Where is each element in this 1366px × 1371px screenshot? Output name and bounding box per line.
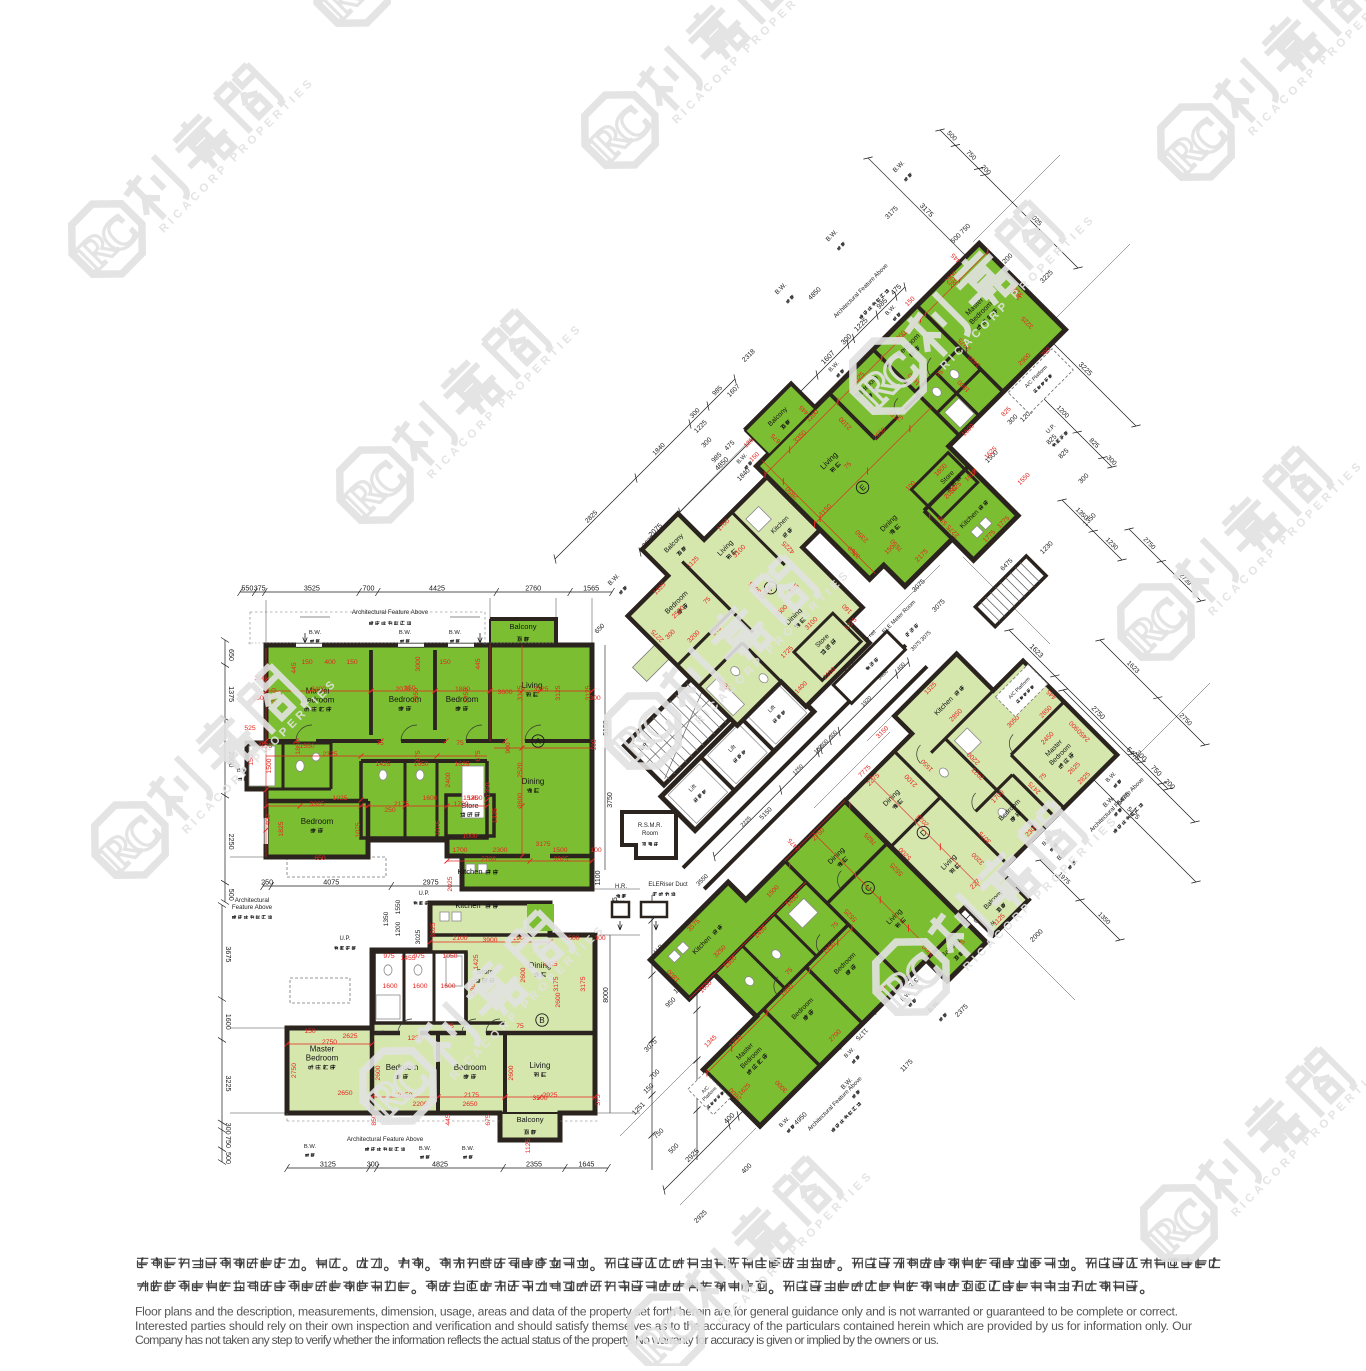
svg-text:1600: 1600 <box>422 795 437 802</box>
svg-text:3000: 3000 <box>415 656 422 671</box>
svg-text:3025: 3025 <box>430 922 437 937</box>
svg-text:2600: 2600 <box>520 967 527 982</box>
svg-text:4425: 4425 <box>429 583 445 592</box>
svg-text:3225: 3225 <box>224 1076 233 1092</box>
svg-text:1700: 1700 <box>453 801 468 808</box>
svg-text:700: 700 <box>363 583 375 592</box>
svg-text:1600: 1600 <box>224 1014 233 1030</box>
svg-text:1700: 1700 <box>452 847 467 854</box>
svg-text:1075: 1075 <box>355 822 362 837</box>
svg-text:B.W.: B.W. <box>304 1144 317 1150</box>
svg-text:1455: 1455 <box>400 955 415 962</box>
svg-text:1550: 1550 <box>395 899 402 914</box>
svg-text:3675: 3675 <box>224 946 233 962</box>
svg-text:1100: 1100 <box>595 870 602 885</box>
svg-text:B.W.: B.W. <box>309 630 322 636</box>
svg-text:1400: 1400 <box>467 795 482 802</box>
svg-text:2250: 2250 <box>227 834 236 850</box>
svg-text:Living: Living <box>530 1061 551 1070</box>
svg-text:Company has not taken any step: Company has not taken any step to verify… <box>135 1333 939 1347</box>
svg-text:2650: 2650 <box>337 1090 352 1097</box>
svg-text:2750: 2750 <box>322 1039 337 1046</box>
svg-text:675: 675 <box>485 1114 492 1126</box>
svg-text:3600: 3600 <box>517 793 524 808</box>
svg-text:1600: 1600 <box>440 983 455 990</box>
svg-text:150: 150 <box>301 659 313 666</box>
svg-text:ELERiser Duct: ELERiser Duct <box>648 882 688 888</box>
svg-text:1425: 1425 <box>375 761 390 768</box>
svg-text:1075: 1075 <box>435 820 442 835</box>
svg-text:Kitchen: Kitchen <box>455 901 480 910</box>
svg-text:445: 445 <box>291 662 298 674</box>
svg-text:445: 445 <box>475 658 482 670</box>
svg-text:75: 75 <box>516 1023 524 1030</box>
svg-text:2025: 2025 <box>447 876 454 891</box>
svg-text:Balcony: Balcony <box>509 622 536 631</box>
svg-text:2700: 2700 <box>481 856 496 863</box>
svg-text:375: 375 <box>254 583 266 592</box>
svg-text:B.W.: B.W. <box>449 630 462 636</box>
svg-text:1375: 1375 <box>227 686 236 702</box>
svg-text:2300: 2300 <box>492 847 507 854</box>
svg-text:150: 150 <box>439 659 451 666</box>
svg-text:2025: 2025 <box>553 856 568 863</box>
svg-text:1200: 1200 <box>395 921 402 936</box>
svg-text:1625: 1625 <box>454 761 469 768</box>
svg-text:3750: 3750 <box>607 792 614 808</box>
svg-text:1645: 1645 <box>578 1159 594 1168</box>
svg-text:100: 100 <box>590 847 602 854</box>
svg-text:3175: 3175 <box>535 841 550 848</box>
svg-text:3125: 3125 <box>320 1159 336 1168</box>
svg-text:250: 250 <box>384 807 396 814</box>
svg-text:3900: 3900 <box>482 937 497 944</box>
svg-text:1350: 1350 <box>383 911 390 926</box>
svg-text:2950: 2950 <box>463 688 470 703</box>
svg-text:Bedroom: Bedroom <box>301 817 334 826</box>
svg-text:3500: 3500 <box>532 1095 547 1102</box>
svg-text:150: 150 <box>304 1028 316 1035</box>
svg-text:Architectural: Architectural <box>235 897 269 904</box>
svg-text:400: 400 <box>324 659 336 666</box>
svg-text:650: 650 <box>314 855 326 862</box>
svg-text:1600: 1600 <box>412 983 427 990</box>
svg-text:B.W.: B.W. <box>462 1146 475 1152</box>
svg-text:1500: 1500 <box>552 847 567 854</box>
svg-text:650: 650 <box>227 649 236 661</box>
svg-text:150: 150 <box>346 659 358 666</box>
svg-text:3025: 3025 <box>415 929 422 944</box>
svg-text:2600: 2600 <box>555 992 562 1007</box>
svg-text:2600: 2600 <box>508 1065 515 1080</box>
svg-text:4825: 4825 <box>432 1159 448 1168</box>
svg-text:B.W.: B.W. <box>419 1146 432 1152</box>
svg-text:1500: 1500 <box>266 758 273 773</box>
svg-text:1350: 1350 <box>485 782 492 797</box>
svg-text:445: 445 <box>445 1114 452 1126</box>
svg-text:3525: 3525 <box>304 583 320 592</box>
svg-text:2760: 2760 <box>525 583 541 592</box>
svg-text:1565: 1565 <box>583 583 599 592</box>
svg-text:300: 300 <box>589 695 601 702</box>
svg-text:Kitchen: Kitchen <box>457 867 482 876</box>
svg-text:1050: 1050 <box>442 953 457 960</box>
svg-text:3325: 3325 <box>309 801 324 808</box>
svg-text:3600: 3600 <box>497 689 512 696</box>
svg-text:75: 75 <box>456 740 464 747</box>
svg-text:2325: 2325 <box>322 751 337 758</box>
svg-text:Bedroom: Bedroom <box>306 1054 339 1063</box>
svg-text:Architectural Feature Above: Architectural Feature Above <box>347 1136 424 1143</box>
svg-text:4075: 4075 <box>323 877 339 886</box>
svg-text:1325: 1325 <box>492 808 499 823</box>
svg-text:100: 100 <box>591 739 598 751</box>
svg-text:U.P.: U.P. <box>419 891 430 897</box>
svg-text:750: 750 <box>224 1136 233 1148</box>
svg-text:Architectural Feature Above: Architectural Feature Above <box>352 609 429 616</box>
svg-text:2400: 2400 <box>445 772 452 787</box>
svg-text:975: 975 <box>383 953 395 960</box>
svg-text:2625: 2625 <box>342 1033 357 1040</box>
svg-text:1025: 1025 <box>332 795 347 802</box>
svg-text:2650: 2650 <box>462 1101 477 1108</box>
svg-text:1600: 1600 <box>382 983 397 990</box>
svg-text:U.P.: U.P. <box>340 936 351 942</box>
svg-text:B.W.: B.W. <box>399 630 412 636</box>
svg-text:H.R.: H.R. <box>615 884 627 890</box>
svg-text:R.S.M.R.: R.S.M.R. <box>638 823 663 829</box>
svg-text:2520: 2520 <box>517 762 524 777</box>
svg-text:1825: 1825 <box>278 821 285 836</box>
svg-text:2355: 2355 <box>526 1159 542 1168</box>
svg-text:3125: 3125 <box>555 685 562 700</box>
svg-text:550: 550 <box>241 583 253 592</box>
svg-text:2975: 2975 <box>423 877 439 886</box>
svg-text:300: 300 <box>224 1123 233 1135</box>
svg-text:Room: Room <box>642 831 658 837</box>
svg-text:3175: 3175 <box>580 976 587 991</box>
svg-text:1125: 1125 <box>525 1138 532 1153</box>
svg-text:1000: 1000 <box>462 833 477 840</box>
svg-text:300: 300 <box>367 1159 379 1168</box>
svg-text:2175: 2175 <box>464 1092 479 1099</box>
svg-text:8000: 8000 <box>603 987 610 1003</box>
svg-text:2750: 2750 <box>291 1063 298 1078</box>
svg-text:Dining: Dining <box>522 777 545 786</box>
svg-text:500: 500 <box>224 1152 233 1164</box>
svg-text:Balcony: Balcony <box>516 1115 543 1124</box>
svg-text:A: A <box>535 737 541 746</box>
svg-text:2100: 2100 <box>452 935 467 942</box>
svg-text:250: 250 <box>261 877 273 886</box>
svg-text:Feature Above: Feature Above <box>232 904 273 911</box>
svg-text:75: 75 <box>376 740 384 747</box>
svg-text:B: B <box>539 1016 545 1025</box>
svg-text:1425: 1425 <box>473 954 480 969</box>
